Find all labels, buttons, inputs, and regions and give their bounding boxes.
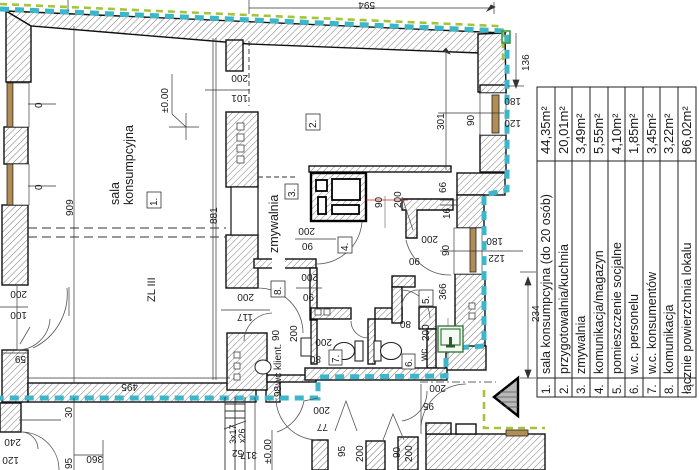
svg-text:7.: 7. xyxy=(647,384,659,394)
svg-text:3,49m²: 3,49m² xyxy=(573,113,588,154)
svg-text:6.: 6. xyxy=(629,384,641,394)
svg-text:122: 122 xyxy=(488,252,505,263)
svg-text:180: 180 xyxy=(486,235,503,246)
svg-text:200: 200 xyxy=(404,445,415,462)
svg-text:7.: 7. xyxy=(331,355,342,363)
svg-text:301: 301 xyxy=(436,113,447,130)
svg-text:95: 95 xyxy=(422,400,434,411)
svg-text:3.: 3. xyxy=(287,189,298,197)
svg-text:komunikacja/magazyn: komunikacja/magazyn xyxy=(592,250,606,374)
svg-text:90: 90 xyxy=(466,114,477,126)
svg-text:3,45m²: 3,45m² xyxy=(644,113,659,154)
svg-text:59: 59 xyxy=(14,353,26,364)
svg-text:80: 80 xyxy=(399,318,411,329)
svg-text:komunikacja: komunikacja xyxy=(662,304,676,374)
svg-text:8.: 8. xyxy=(664,384,676,394)
svg-text:101: 101 xyxy=(231,92,248,103)
svg-text:200: 200 xyxy=(313,404,330,415)
svg-text:90: 90 xyxy=(271,329,282,341)
svg-text:90: 90 xyxy=(301,240,313,251)
svg-text:w.c. personelu: w.c. personelu xyxy=(627,294,641,375)
svg-text:200: 200 xyxy=(355,445,366,462)
svg-text:±0.00: ±0.00 xyxy=(160,88,171,113)
svg-text:przygotowalnia/kuchnia: przygotowalnia/kuchnia xyxy=(557,244,571,374)
svg-text:x26: x26 xyxy=(237,428,247,443)
svg-text:16: 16 xyxy=(442,207,453,219)
svg-text:w.c. konsumentów: w.c. konsumentów xyxy=(645,271,659,375)
svg-text:200: 200 xyxy=(421,324,432,341)
svg-text:594: 594 xyxy=(358,0,375,10)
svg-text:317: 317 xyxy=(240,449,257,460)
svg-text:5.: 5. xyxy=(612,384,624,394)
svg-text:4.: 4. xyxy=(594,384,606,394)
svg-text:5.: 5. xyxy=(421,296,432,304)
svg-text:200: 200 xyxy=(301,271,318,282)
svg-text:0: 0 xyxy=(34,102,45,108)
svg-text:2.: 2. xyxy=(559,384,571,394)
svg-text:1.: 1. xyxy=(149,198,160,206)
svg-text:100: 100 xyxy=(10,309,27,320)
svg-text:30: 30 xyxy=(64,406,75,418)
svg-text:ZL III: ZL III xyxy=(146,277,158,302)
svg-text:łącznie powierzchnia lokalu: łącznie powierzchnia lokalu xyxy=(680,242,694,394)
svg-text:366: 366 xyxy=(438,283,449,300)
svg-text:sala: sala xyxy=(108,182,122,205)
svg-text:495: 495 xyxy=(121,381,138,392)
svg-text:95: 95 xyxy=(64,457,75,469)
svg-text:90: 90 xyxy=(441,244,452,256)
svg-text:3.: 3. xyxy=(576,384,588,394)
svg-text:6.: 6. xyxy=(404,359,415,367)
svg-text:200: 200 xyxy=(289,325,300,342)
svg-text:4.: 4. xyxy=(340,243,351,251)
svg-text:wc klient.: wc klient. xyxy=(273,344,284,386)
svg-text:1.: 1. xyxy=(541,384,553,394)
svg-text:90: 90 xyxy=(302,291,314,302)
svg-text:±0,00: ±0,00 xyxy=(263,439,274,464)
svg-text:wc: wc xyxy=(419,349,430,362)
svg-text:136: 136 xyxy=(521,54,532,71)
svg-text:200: 200 xyxy=(237,291,254,302)
svg-text:240: 240 xyxy=(4,436,21,447)
svg-text:117: 117 xyxy=(237,311,253,322)
svg-text:4,10m²: 4,10m² xyxy=(609,113,624,154)
svg-text:200: 200 xyxy=(231,72,248,83)
svg-text:86,02m²: 86,02m² xyxy=(679,106,694,154)
svg-text:120: 120 xyxy=(504,117,521,128)
svg-text:sala konsumpcyjna (do 20 osób): sala konsumpcyjna (do 20 osób) xyxy=(539,194,553,374)
svg-text:120: 120 xyxy=(2,454,19,465)
svg-text:77: 77 xyxy=(316,421,328,432)
svg-text:200: 200 xyxy=(315,336,332,347)
svg-text:90: 90 xyxy=(392,446,403,458)
svg-text:98: 98 xyxy=(273,385,284,397)
svg-text:0: 0 xyxy=(34,184,45,190)
svg-text:zmywalnia: zmywalnia xyxy=(574,316,588,374)
svg-text:90: 90 xyxy=(374,196,385,208)
svg-text:66: 66 xyxy=(438,181,449,193)
svg-text:234: 234 xyxy=(531,305,542,322)
svg-text:200: 200 xyxy=(393,191,404,208)
svg-text:80: 80 xyxy=(309,353,321,364)
svg-text:881: 881 xyxy=(209,207,220,224)
svg-text:5,55m²: 5,55m² xyxy=(591,113,606,154)
svg-text:1,85m²: 1,85m² xyxy=(626,113,641,154)
svg-text:200: 200 xyxy=(298,225,315,236)
svg-text:20,01m²: 20,01m² xyxy=(556,106,571,154)
svg-text:8.: 8. xyxy=(273,287,284,295)
svg-text:200: 200 xyxy=(429,382,446,393)
svg-text:360: 360 xyxy=(86,453,103,464)
svg-text:2.: 2. xyxy=(308,120,319,128)
svg-text:44,35m²: 44,35m² xyxy=(538,106,553,154)
svg-text:180: 180 xyxy=(504,95,521,106)
svg-text:95: 95 xyxy=(337,445,348,457)
svg-text:3,22m²: 3,22m² xyxy=(661,113,676,154)
svg-text:90: 90 xyxy=(408,255,420,266)
svg-text:pomieszczenie socjalne: pomieszczenie socjalne xyxy=(610,242,624,374)
svg-text:200: 200 xyxy=(421,233,438,244)
svg-text:zmywalnia: zmywalnia xyxy=(267,195,281,253)
svg-text:200: 200 xyxy=(10,288,27,299)
svg-text:909: 909 xyxy=(65,199,76,216)
svg-text:konsumpcyjna: konsumpcyjna xyxy=(122,125,136,205)
